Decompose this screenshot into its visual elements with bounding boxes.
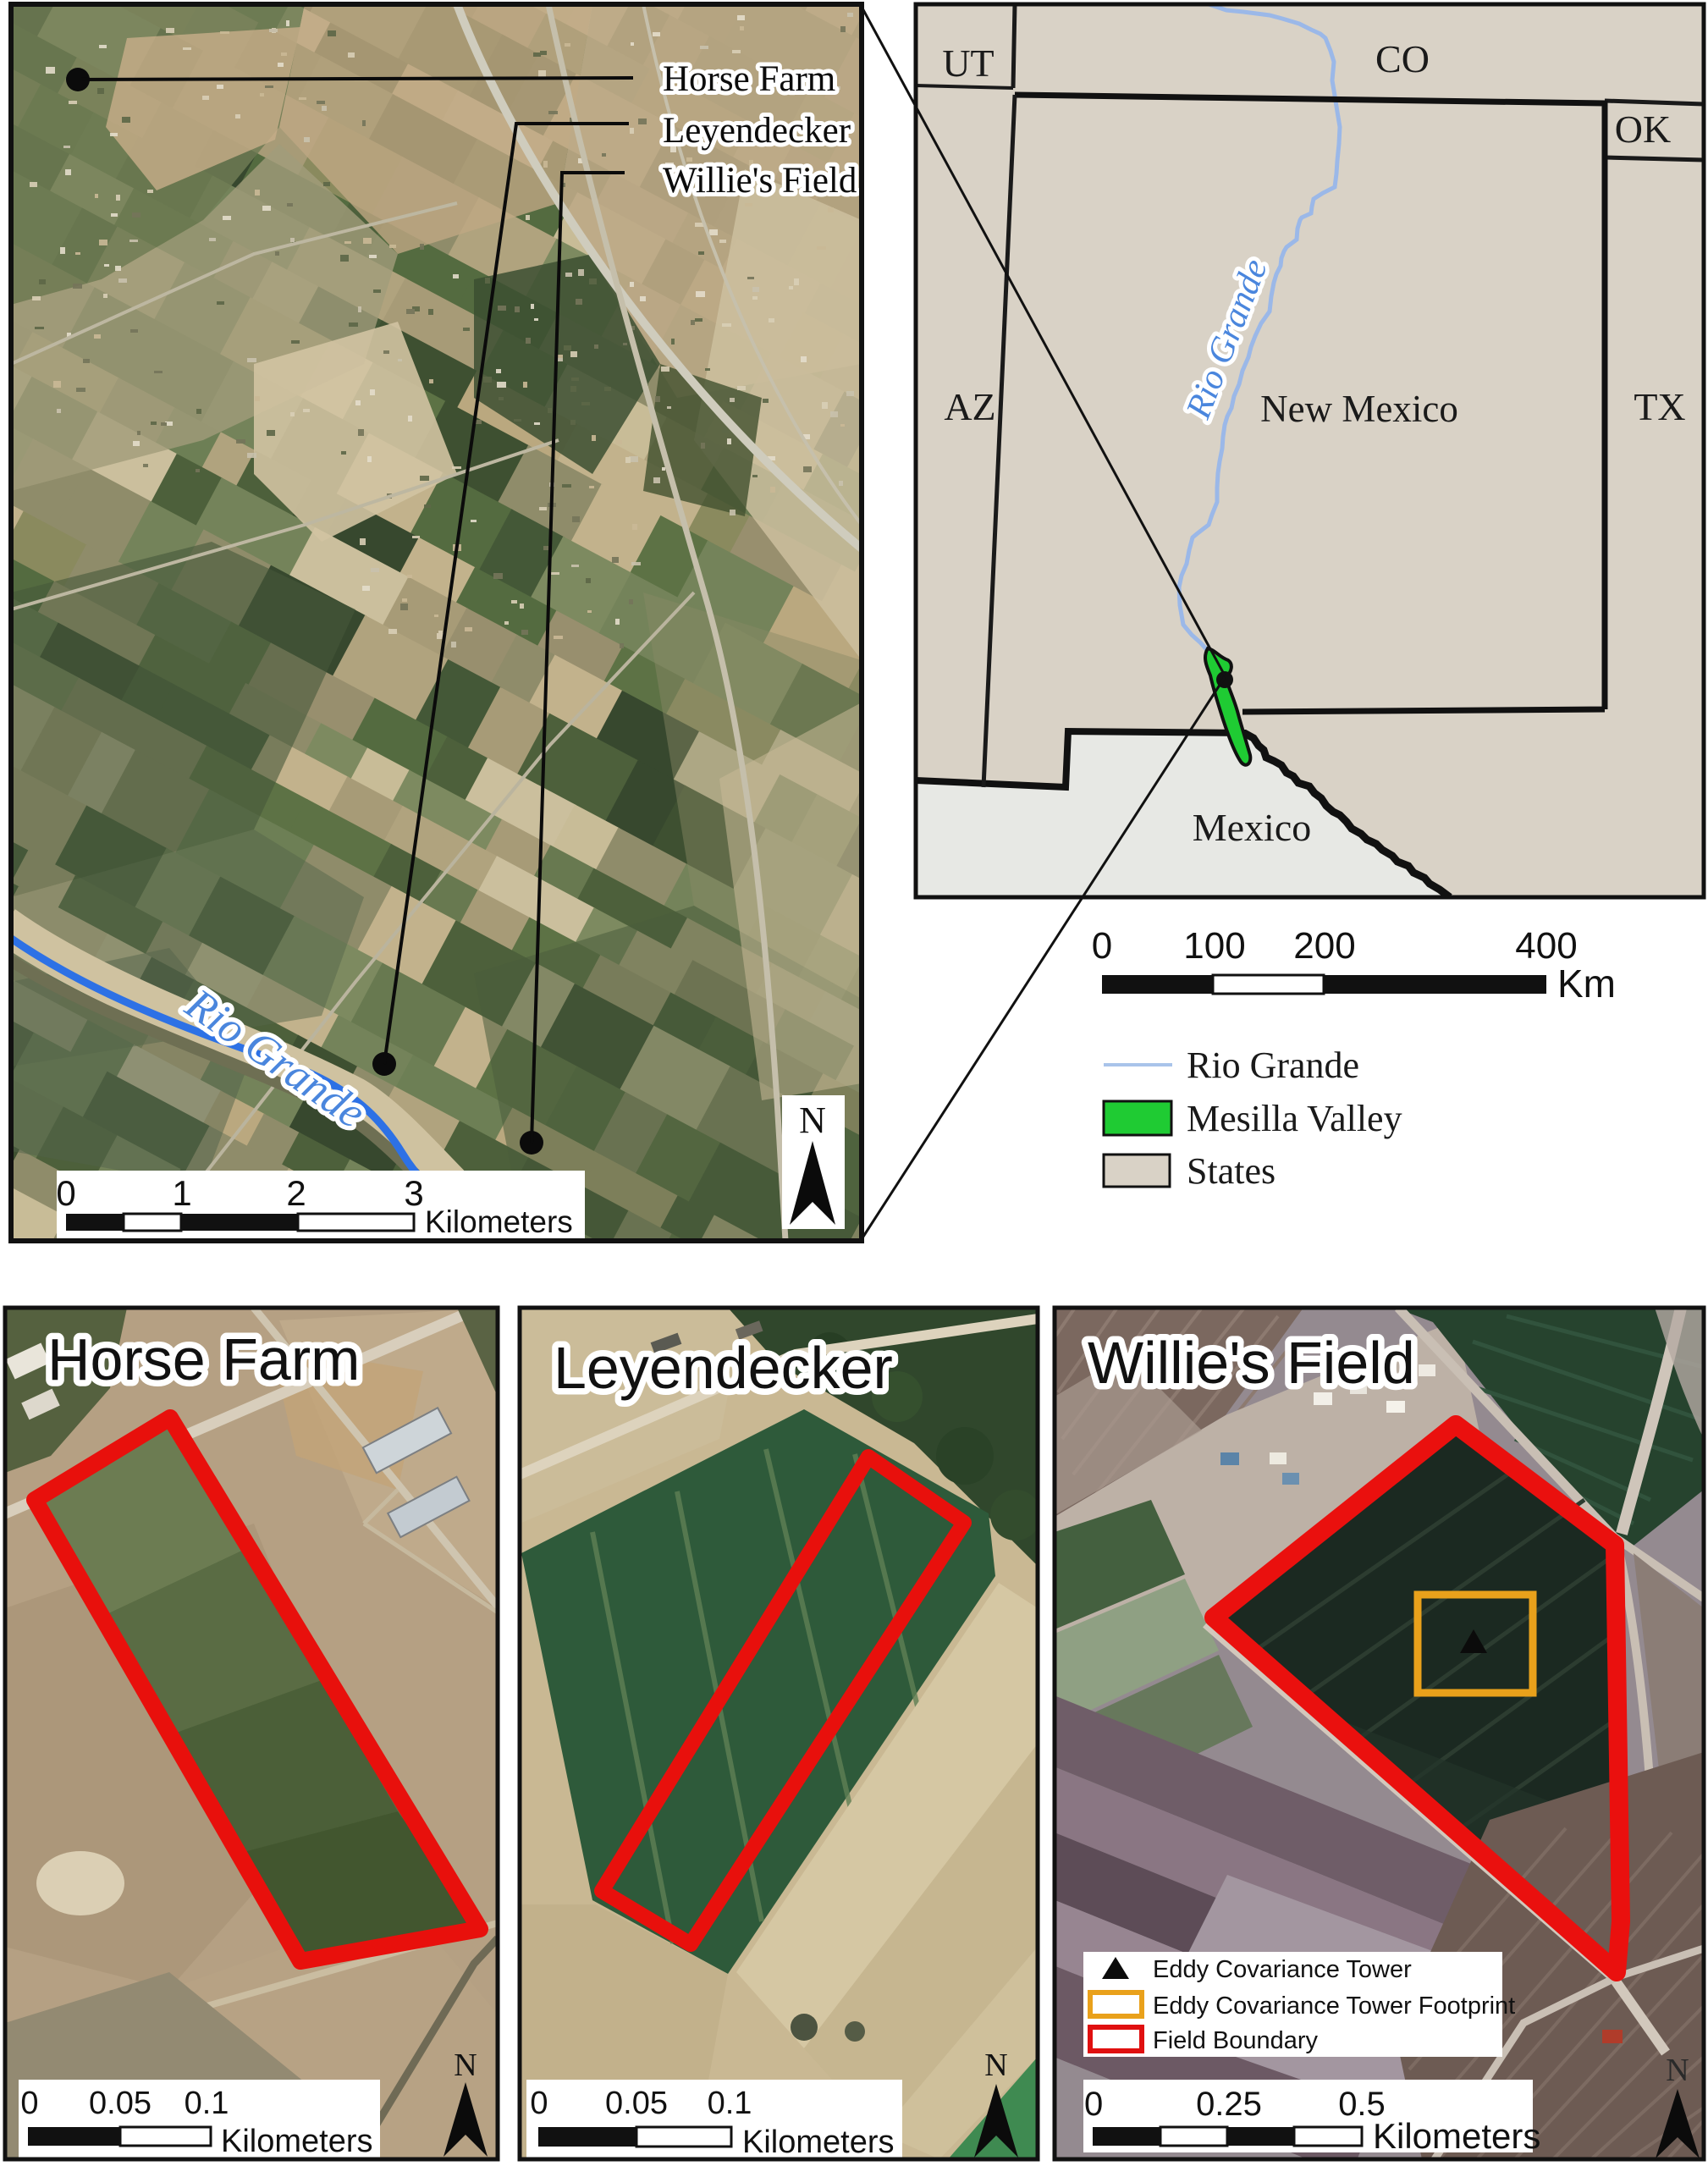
svg-text:Kilometers: Kilometers [425,1204,573,1239]
svg-text:Horse Farm: Horse Farm [663,59,835,99]
svg-text:Kilometers: Kilometers [221,2124,373,2159]
svg-text:Horse Farm: Horse Farm [47,1326,360,1392]
svg-text:100: 100 [1183,925,1245,967]
svg-text:States: States [1187,1150,1275,1192]
svg-text:0.1: 0.1 [185,2086,229,2121]
svg-text:New Mexico: New Mexico [1260,388,1458,430]
svg-text:0: 0 [20,2086,38,2121]
svg-text:Kilometers: Kilometers [1373,2116,1540,2156]
svg-text:N: N [454,2048,477,2083]
svg-text:0.25: 0.25 [1196,2086,1262,2123]
svg-text:Willie's Field: Willie's Field [663,161,857,201]
svg-text:UT: UT [942,41,994,85]
svg-text:Kilometers: Kilometers [742,2125,895,2160]
svg-text:200: 200 [1293,925,1355,967]
svg-text:3: 3 [404,1173,423,1213]
svg-text:CO: CO [1375,37,1430,80]
svg-text:AZ: AZ [944,385,995,428]
svg-text:TX: TX [1634,385,1685,428]
svg-text:0.05: 0.05 [605,2086,668,2121]
svg-text:N: N [799,1100,826,1141]
svg-text:Leyendecker: Leyendecker [554,1335,893,1401]
svg-text:N: N [1666,2053,1689,2088]
svg-text:2: 2 [286,1173,306,1213]
svg-text:Mesilla Valley: Mesilla Valley [1187,1098,1402,1139]
svg-text:Eddy Covariance Tower: Eddy Covariance Tower [1153,1956,1412,1983]
svg-text:0.05: 0.05 [89,2086,152,2121]
svg-text:0: 0 [56,1173,75,1213]
svg-text:400: 400 [1515,925,1577,967]
svg-text:Rio Grande: Rio Grande [1187,1044,1359,1086]
svg-text:Leyendecker: Leyendecker [663,111,851,151]
svg-text:0: 0 [1084,2086,1103,2123]
svg-text:0: 0 [1092,925,1112,967]
svg-text:Km: Km [1557,962,1616,1006]
svg-text:N: N [984,2048,1007,2083]
svg-text:0: 0 [530,2086,548,2121]
svg-text:Mexico: Mexico [1193,806,1312,849]
svg-text:1: 1 [172,1173,191,1213]
svg-text:Eddy Covariance Tower Footprin: Eddy Covariance Tower Footprint [1153,1992,1515,2020]
svg-text:Field Boundary: Field Boundary [1153,2027,1319,2054]
svg-text:Willie's Field: Willie's Field [1088,1330,1415,1396]
svg-text:0.1: 0.1 [708,2086,752,2121]
svg-text:OK: OK [1615,107,1671,151]
